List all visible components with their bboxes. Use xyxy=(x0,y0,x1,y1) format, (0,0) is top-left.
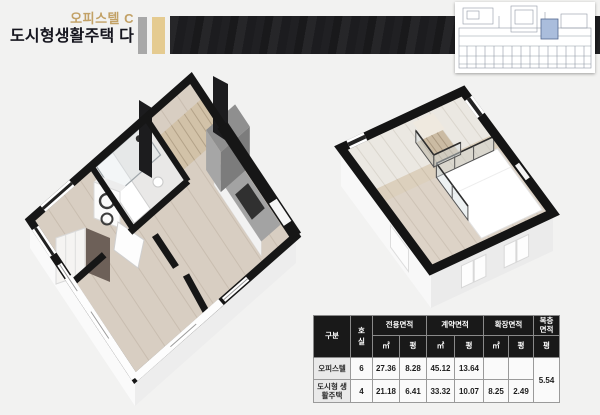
table-row-officetel: 오피스텔 6 27.36 8.28 45.12 13.64 5.54 xyxy=(314,358,560,380)
col-header-duplex-area: 복층면적 xyxy=(534,316,560,336)
bathtub xyxy=(97,152,151,223)
bed xyxy=(436,149,542,239)
kitchen-cabinet-side xyxy=(221,127,250,193)
unit-header-sqm: ㎡ xyxy=(373,336,400,358)
staircase xyxy=(159,97,227,172)
cell-duplex-pyeong: 5.54 xyxy=(534,358,560,403)
unit-header-sqm: ㎡ xyxy=(427,336,455,358)
accent-bar-gray xyxy=(138,17,147,54)
cell-exclusive-sqm: 21.18 xyxy=(373,380,400,403)
col-header-category: 구분 xyxy=(314,316,351,358)
key-plan-highlight-unit xyxy=(541,19,558,39)
floor-plan-upper xyxy=(324,80,600,315)
kitchen-counter-top xyxy=(214,153,281,241)
col-header-exclusive-area: 전용면적 xyxy=(373,316,427,336)
cell-contract-pyeong: 10.07 xyxy=(455,380,484,403)
cell-extended-pyeong xyxy=(509,358,534,380)
stair-void xyxy=(413,113,461,167)
cell-exclusive-sqm: 27.36 xyxy=(373,358,400,380)
table-row-urban-housing: 도시형 생활주택 4 21.18 6.41 33.32 10.07 8.25 2… xyxy=(314,380,560,403)
col-header-room: 호실 xyxy=(351,316,373,358)
col-header-contract-area: 계약면적 xyxy=(427,316,484,336)
unit-header-pyeong: 평 xyxy=(455,336,484,358)
unit-header-sqm: ㎡ xyxy=(484,336,509,358)
sink xyxy=(153,177,163,187)
unit-header-pyeong: 평 xyxy=(534,336,560,358)
cell-extended-sqm: 8.25 xyxy=(484,380,509,403)
floor-plan-lower xyxy=(8,70,322,410)
accent-bar-tan xyxy=(152,17,165,54)
building-base-lower xyxy=(30,220,296,406)
shower-head xyxy=(136,135,143,142)
unit-header-pyeong: 평 xyxy=(400,336,427,358)
brochure-slide: { "header": { "unit_label": "오피스텔 C", "t… xyxy=(0,0,600,415)
area-table: 구분 호실 전용면적 계약면적 확장면적 복층면적 ㎡ 평 ㎡ 평 ㎡ 평 평 … xyxy=(313,315,560,403)
loft-walls xyxy=(341,91,553,270)
loft-floor xyxy=(341,91,553,270)
washer-dryer-stack xyxy=(94,176,126,228)
cell-extended-sqm xyxy=(484,358,509,380)
cell-room: 4 xyxy=(351,380,373,403)
title-block: 오피스텔 C 도시형생활주택 다 xyxy=(0,11,134,47)
unit-type-label: 오피스텔 C xyxy=(0,11,134,27)
cell-contract-sqm: 45.12 xyxy=(427,358,455,380)
building-base-upper xyxy=(341,148,553,308)
room-door-open xyxy=(114,222,144,268)
col-header-extended-area: 확장면적 xyxy=(484,316,534,336)
cell-exclusive-pyeong: 6.41 xyxy=(400,380,427,403)
cell-room: 6 xyxy=(351,358,373,380)
floor-wood xyxy=(30,78,296,378)
kitchen-cabinet-top xyxy=(206,104,250,152)
key-plan-blueprint-drawing xyxy=(455,2,595,73)
cell-contract-sqm: 33.32 xyxy=(427,380,455,403)
windows xyxy=(35,183,287,378)
cell-exclusive-pyeong: 8.28 xyxy=(400,358,427,380)
kitchen-cabinet-front xyxy=(206,130,221,192)
wardrobe xyxy=(56,228,85,284)
page-title: 도시형생활주택 다 xyxy=(0,27,134,47)
glass-railing xyxy=(416,131,494,220)
kitchen xyxy=(206,104,281,256)
unit-header-pyeong: 평 xyxy=(509,336,534,358)
cell-extended-pyeong: 2.49 xyxy=(509,380,534,403)
bathroom xyxy=(91,118,188,229)
tall-wall-fins xyxy=(139,76,228,178)
row-category: 도시형 생활주택 xyxy=(314,380,351,403)
closet-door-panel xyxy=(86,228,110,282)
shower-glass xyxy=(97,127,161,195)
cooktop xyxy=(235,183,265,220)
key-plan-thumbnail xyxy=(455,2,595,73)
kitchen-counter-front xyxy=(214,170,261,256)
cell-contract-pyeong: 13.64 xyxy=(455,358,484,380)
row-category: 오피스텔 xyxy=(314,358,351,380)
walls xyxy=(30,78,296,378)
